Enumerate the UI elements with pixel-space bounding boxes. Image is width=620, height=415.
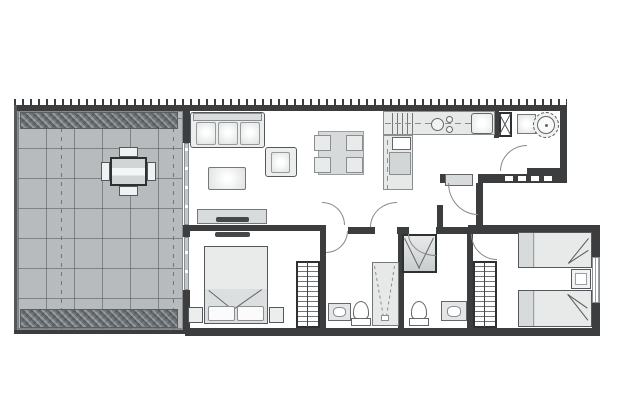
sofa-cushion-1 xyxy=(196,122,216,145)
planter-top xyxy=(20,112,178,129)
bedroom2-window xyxy=(592,257,600,303)
corridor-door-arc xyxy=(322,202,345,225)
right-wall-lower xyxy=(592,303,600,336)
bed1-pillow-right xyxy=(237,306,264,321)
balcony-floor-tiles xyxy=(17,111,183,330)
balcony-sliding-door-glazing-1 xyxy=(184,143,189,225)
balcony-expansion-joint-2 xyxy=(173,111,174,330)
nightstand1-left xyxy=(188,307,203,323)
dining-chair-4 xyxy=(346,157,363,173)
bedroom1-door-arc xyxy=(326,231,348,253)
toilet2-cistern xyxy=(409,318,429,326)
balcony-expansion-joint-1 xyxy=(61,111,62,330)
outdoor-chair-bottom xyxy=(119,186,138,196)
balcony-bottom-edge xyxy=(14,330,186,334)
bed2-single-bottom xyxy=(518,290,592,327)
laundry-tub-drain xyxy=(545,124,548,127)
wardrobe1 xyxy=(296,261,320,328)
bottom-wall xyxy=(185,328,600,336)
nightstand1-right xyxy=(269,307,284,323)
balcony-left-wall xyxy=(14,105,17,333)
outdoor-table xyxy=(110,157,147,186)
outdoor-chair-top xyxy=(119,147,138,157)
living-bedroom1-wall xyxy=(190,225,326,231)
bed2-bottom-pillow-line xyxy=(533,291,534,326)
bathroom1-door-arc xyxy=(370,202,397,227)
balcony-divider-block-top xyxy=(183,105,190,143)
planter-bottom xyxy=(20,309,178,328)
sofa-cushion-2 xyxy=(218,122,238,145)
outdoor-chair-left xyxy=(101,162,110,181)
nightstand2-inner xyxy=(575,273,587,285)
bed2-single-top xyxy=(518,232,592,268)
entry-wall-slot-2 xyxy=(518,176,526,181)
bathroom1-basin xyxy=(333,307,346,317)
fridge xyxy=(471,113,493,134)
laundry-door-arc xyxy=(500,145,527,171)
corridor-south-wall-c xyxy=(436,227,473,234)
dining-chair-1 xyxy=(314,135,331,151)
wardrobe2-rail xyxy=(484,262,485,327)
kitchen-sink-tap-1 xyxy=(446,116,453,123)
bathroom2-basin xyxy=(447,306,461,317)
dining-chair-3 xyxy=(314,157,331,173)
right-wall-upper xyxy=(592,225,600,257)
sofa-backrest xyxy=(193,113,262,121)
kitchen-sink-tap-2 xyxy=(446,126,453,133)
tv-bedroom1 xyxy=(215,232,250,237)
oven xyxy=(389,152,411,175)
wardrobe1-rail xyxy=(307,262,308,327)
cooktop xyxy=(392,137,411,150)
balcony-divider-block-mid xyxy=(183,225,190,237)
bed1-pillow-left xyxy=(208,306,235,321)
dining-chair-2 xyxy=(346,135,363,151)
shower1-drain xyxy=(381,315,389,321)
armchair-seat xyxy=(271,152,290,173)
peninsula-dashed-line xyxy=(387,135,388,190)
tv-living xyxy=(216,217,249,222)
corridor-south-wall-a xyxy=(348,227,375,234)
entry-door-arc xyxy=(448,183,478,215)
sofa-cushion-3 xyxy=(240,122,260,145)
outdoor-chair-right xyxy=(147,162,156,181)
laundry-right-wall xyxy=(560,105,567,183)
coffee-table xyxy=(208,167,246,190)
balcony-window-glazing-2 xyxy=(184,237,189,290)
kitchen-sink-bowl xyxy=(431,118,444,131)
entry-wall-slot-4 xyxy=(544,176,552,181)
entry-wall-slot-1 xyxy=(505,176,513,181)
wardrobe2 xyxy=(473,261,497,328)
entry-wall-slot-3 xyxy=(531,176,539,181)
floor-plan xyxy=(0,0,620,415)
bed2-top-pillow-line xyxy=(533,233,534,267)
toilet1-cistern xyxy=(351,318,371,326)
bedroom2-door-arc xyxy=(471,234,497,260)
